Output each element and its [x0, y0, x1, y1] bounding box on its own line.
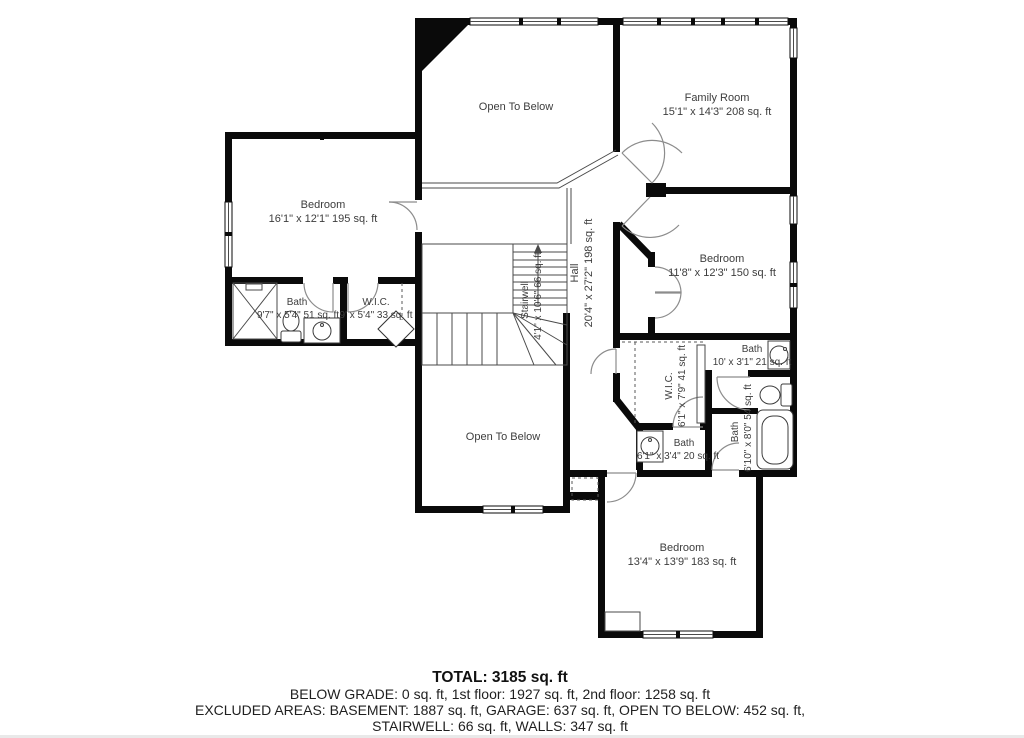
summary-line-excluded: EXCLUDED AREAS: BASEMENT: 1887 sq. ft, G…	[195, 702, 805, 718]
svg-text:15'1" x 14'3" 208 sq. ft: 15'1" x 14'3" 208 sq. ft	[663, 106, 772, 118]
svg-text:6'10" x 8'0" 54 sq. ft: 6'10" x 8'0" 54 sq. ft	[743, 384, 754, 472]
svg-text:Bedroom: Bedroom	[660, 542, 705, 554]
svg-text:6'1" x 3'4" 20 sq. ft: 6'1" x 3'4" 20 sq. ft	[637, 451, 719, 462]
room-label-bedroom-right: Bedroom 11'8" x 12'3" 150 sq. ft	[668, 253, 776, 279]
svg-text:Bath: Bath	[287, 297, 308, 308]
room-label-open-below-bottom: Open To Below	[466, 431, 540, 443]
wall-segment	[748, 370, 797, 377]
svg-text:W.I.C.: W.I.C.	[362, 297, 389, 308]
wall-segment	[648, 252, 655, 267]
wall-segment	[636, 423, 673, 430]
summary-line-grade: BELOW GRADE: 0 sq. ft, 1st floor: 1927 s…	[290, 686, 710, 702]
summary-line-excluded-2: STAIRWELL: 66 sq. ft, WALLS: 347 sq. ft	[372, 718, 628, 734]
svg-text:Bath: Bath	[730, 422, 741, 443]
window	[643, 631, 713, 638]
stairs-icon	[422, 244, 567, 365]
window	[790, 196, 797, 224]
wall-segment	[613, 18, 620, 152]
sink-icon	[304, 318, 340, 343]
door-swing	[389, 202, 417, 230]
wall-segment	[333, 277, 348, 284]
door-swing	[591, 349, 616, 374]
svg-text:13'4" x 13'9" 183 sq. ft: 13'4" x 13'9" 183 sq. ft	[628, 556, 737, 568]
room-label-family: Family Room 15'1" x 14'3" 208 sq. ft	[663, 92, 772, 118]
wall-chamfer	[415, 25, 468, 78]
window	[623, 18, 788, 25]
svg-text:9' x 5'4" 33 sq. ft: 9' x 5'4" 33 sq. ft	[340, 310, 413, 321]
wall-tick	[565, 438, 569, 442]
svg-text:6'1" x 7'9" 41 sq. ft: 6'1" x 7'9" 41 sq. ft	[677, 345, 688, 427]
window	[470, 18, 598, 25]
toilet-icon	[760, 384, 792, 406]
room-label-bath-tub: Bath 6'10" x 8'0" 54 sq. ft	[730, 384, 754, 472]
wall-segment	[637, 470, 712, 477]
svg-text:Bath: Bath	[674, 438, 695, 449]
wall-tick	[320, 136, 324, 140]
window	[483, 506, 543, 513]
svg-text:4'1" x 10'6" 66 sq. ft: 4'1" x 10'6" 66 sq. ft	[533, 252, 544, 340]
room-label-hall: Hall 20'4" x 27'2" 198 sq. ft	[569, 219, 595, 328]
room-label-bedroom-left: Bedroom 16'1" x 12'1" 195 sq. ft	[269, 199, 378, 225]
svg-text:16'1" x 12'1" 195 sq. ft: 16'1" x 12'1" 195 sq. ft	[269, 213, 378, 225]
svg-text:9'7" x 5'4" 51 sq. ft: 9'7" x 5'4" 51 sq. ft	[257, 310, 339, 321]
floor-plan: Open To Below Family Room 15'1" x 14'3" …	[0, 0, 1024, 738]
window	[790, 262, 797, 308]
svg-text:Bedroom: Bedroom	[301, 199, 346, 211]
window	[790, 28, 797, 58]
svg-text:Hall: Hall	[569, 264, 581, 283]
wall-segment	[415, 18, 422, 200]
wall-diagonal	[616, 399, 639, 428]
wall-tick	[600, 520, 604, 524]
wall-segment	[613, 222, 620, 348]
closet-box	[605, 612, 640, 631]
door-swing	[304, 283, 333, 312]
svg-text:Bath: Bath	[742, 344, 763, 355]
room-label-stairwell: Stairwell 4'1" x 10'6" 66 sq. ft	[520, 252, 544, 340]
double-door-swing	[622, 123, 682, 183]
wall-segment	[415, 232, 422, 513]
wall-tick	[758, 575, 762, 579]
window	[225, 202, 232, 267]
wall-diagonal	[619, 224, 652, 258]
wall-tick	[417, 253, 421, 257]
wall-segment	[756, 470, 763, 638]
wall-tick	[721, 188, 725, 192]
wall-segment	[613, 333, 797, 340]
svg-text:Bedroom: Bedroom	[700, 253, 745, 265]
door-swing	[607, 473, 636, 502]
room-label-bath-left: Bath 9'7" x 5'4" 51 sq. ft	[257, 297, 339, 321]
svg-text:W.I.C.: W.I.C.	[664, 372, 675, 399]
svg-text:11'8" x 12'3" 150 sq. ft: 11'8" x 12'3" 150 sq. ft	[668, 267, 776, 279]
summary-total: TOTAL: 3185 sq. ft	[432, 669, 568, 686]
wall-tick	[791, 246, 795, 250]
closet-shelf	[697, 345, 705, 423]
room-label-open-below-top: Open To Below	[479, 101, 553, 113]
room-label-bedroom-bottom: Bedroom 13'4" x 13'9" 183 sq. ft	[628, 542, 737, 568]
svg-text:Family Room: Family Room	[685, 92, 750, 104]
area-summary: TOTAL: 3185 sq. ft BELOW GRADE: 0 sq. ft…	[195, 669, 805, 734]
svg-text:10' x 3'1" 21 sq. ft: 10' x 3'1" 21 sq. ft	[713, 357, 792, 368]
wall-segment	[378, 277, 415, 284]
svg-text:20'4" x 27'2" 198 sq. ft: 20'4" x 27'2" 198 sq. ft	[583, 219, 595, 328]
bathtub-icon	[757, 410, 793, 469]
svg-text:Stairwell: Stairwell	[520, 281, 531, 319]
